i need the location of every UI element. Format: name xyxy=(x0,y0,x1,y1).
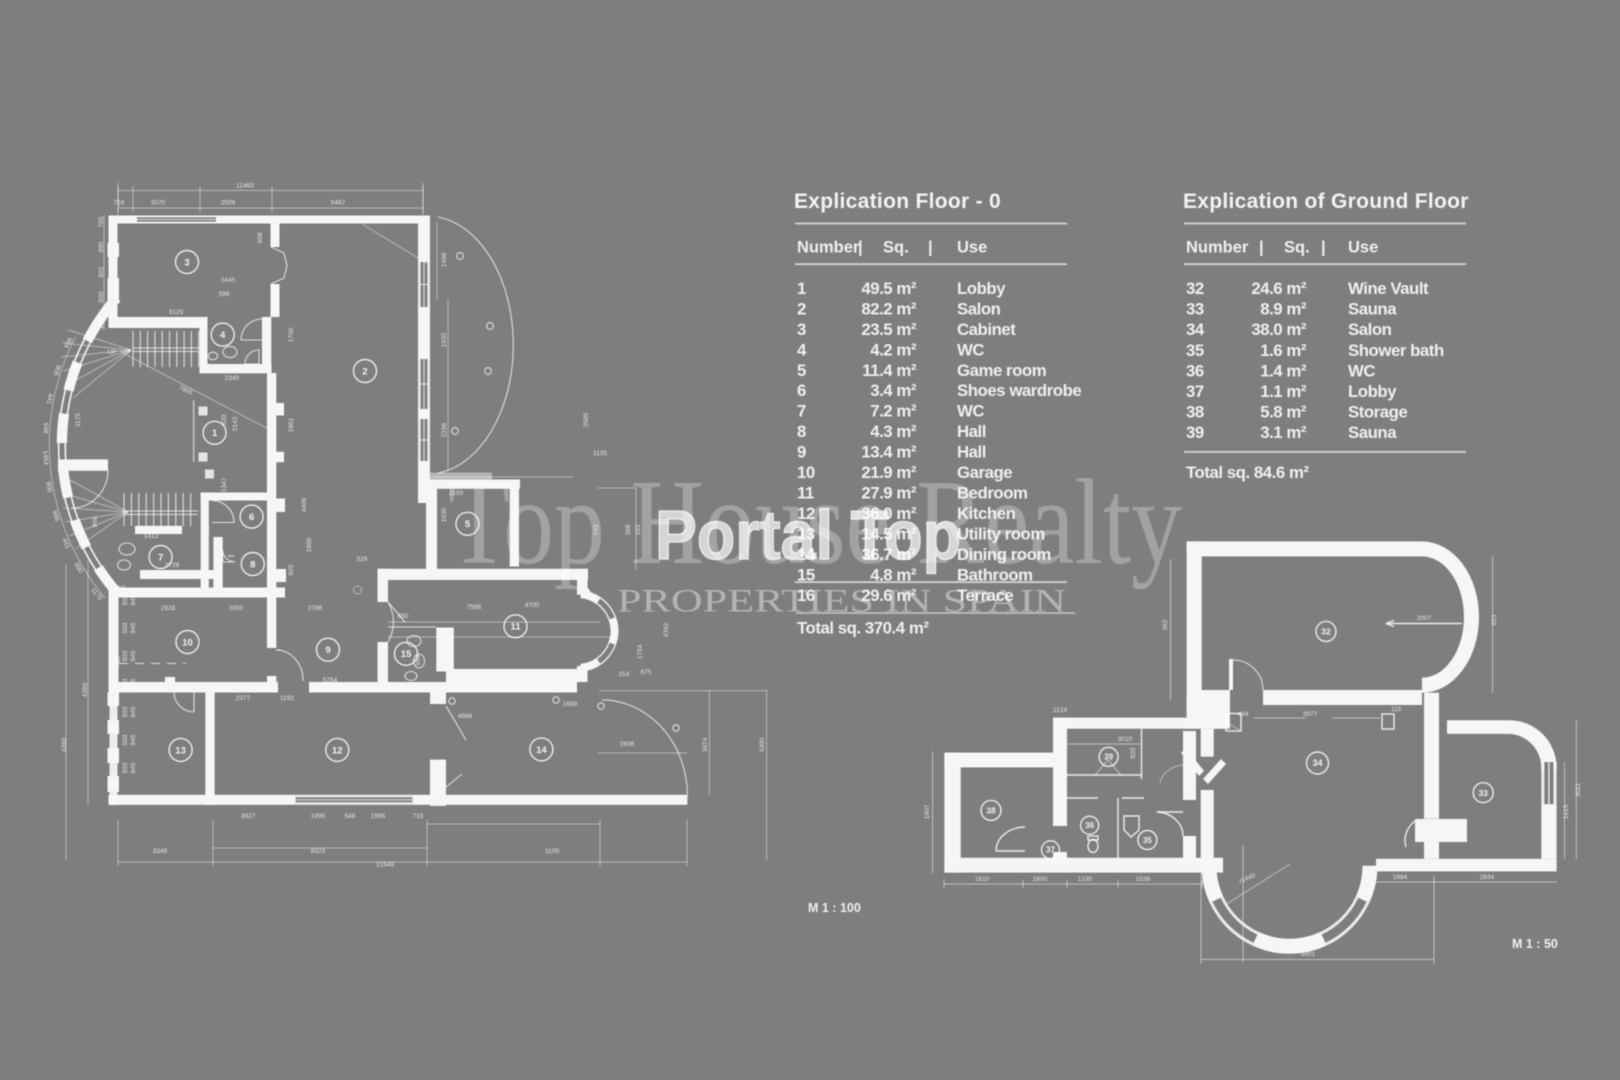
svg-text:1: 1 xyxy=(212,428,218,439)
svg-text:755: 755 xyxy=(98,216,105,227)
svg-text:2928: 2928 xyxy=(161,605,176,612)
svg-text:1413: 1413 xyxy=(144,533,159,540)
svg-text:2786: 2786 xyxy=(308,605,323,612)
svg-text:32: 32 xyxy=(1186,279,1204,298)
svg-text:648: 648 xyxy=(41,422,49,434)
svg-text:2: 2 xyxy=(797,299,806,318)
svg-text:Use: Use xyxy=(1348,238,1378,256)
svg-text:906: 906 xyxy=(92,516,99,527)
svg-text:1600: 1600 xyxy=(1033,876,1048,883)
svg-text:719: 719 xyxy=(413,813,424,820)
svg-text:503: 503 xyxy=(122,734,129,745)
svg-text:2345: 2345 xyxy=(225,375,240,382)
svg-text:434: 434 xyxy=(1238,711,1249,718)
svg-text:1.6 m²: 1.6 m² xyxy=(1260,341,1307,360)
svg-text:5.8 m²: 5.8 m² xyxy=(1260,403,1307,422)
svg-text:650: 650 xyxy=(398,613,409,620)
svg-text:645: 645 xyxy=(130,734,137,745)
svg-text:38: 38 xyxy=(986,805,996,815)
svg-text:503: 503 xyxy=(122,650,129,661)
svg-text:503: 503 xyxy=(122,762,129,773)
svg-text:8323: 8323 xyxy=(311,848,326,855)
svg-text:923: 923 xyxy=(1491,614,1498,625)
svg-text:4: 4 xyxy=(797,340,807,359)
svg-text:815: 815 xyxy=(115,585,126,592)
svg-text:Number: Number xyxy=(797,238,860,256)
svg-text:800: 800 xyxy=(98,291,105,302)
svg-text:WC: WC xyxy=(957,340,984,359)
svg-text:890: 890 xyxy=(98,241,105,252)
svg-text:3129: 3129 xyxy=(169,309,184,316)
svg-text:6: 6 xyxy=(797,381,806,400)
svg-text:599: 599 xyxy=(219,291,230,298)
svg-text:13: 13 xyxy=(175,745,186,756)
svg-text:548: 548 xyxy=(345,813,356,820)
svg-text:7.2 m²: 7.2 m² xyxy=(870,402,917,421)
svg-text:1.4 m²: 1.4 m² xyxy=(1260,361,1307,380)
svg-text:Game room: Game room xyxy=(957,361,1046,380)
svg-text:Sauna: Sauna xyxy=(1348,300,1397,319)
svg-text:1050: 1050 xyxy=(98,314,105,329)
svg-text:2196: 2196 xyxy=(441,422,448,437)
svg-text:37: 37 xyxy=(1186,382,1204,401)
svg-text:34: 34 xyxy=(1312,758,1322,768)
svg-text:36: 36 xyxy=(1186,361,1204,380)
svg-text:WC: WC xyxy=(1348,361,1375,380)
svg-text:1610: 1610 xyxy=(975,876,990,883)
svg-text:49.5 m²: 49.5 m² xyxy=(861,279,917,298)
svg-text:5467: 5467 xyxy=(331,200,346,207)
svg-text:23.5 m²: 23.5 m² xyxy=(861,320,917,339)
svg-text:1347: 1347 xyxy=(221,477,228,492)
svg-text:386: 386 xyxy=(105,574,112,585)
svg-text:11: 11 xyxy=(510,622,521,633)
svg-text:1109: 1109 xyxy=(545,848,559,855)
svg-text:645: 645 xyxy=(130,650,137,661)
svg-text:5754: 5754 xyxy=(323,677,338,684)
svg-text:1680: 1680 xyxy=(563,701,578,708)
svg-text:4409: 4409 xyxy=(301,497,308,512)
svg-text:Lobby: Lobby xyxy=(1348,382,1397,401)
svg-text:Explication of Ground Floor: Explication of Ground Floor xyxy=(1183,190,1469,213)
svg-text:1192: 1192 xyxy=(280,695,294,702)
svg-text:6: 6 xyxy=(249,512,254,523)
svg-text:3674: 3674 xyxy=(702,737,709,752)
svg-text:4.3 m²: 4.3 m² xyxy=(870,422,917,441)
svg-text:3346: 3346 xyxy=(153,848,168,855)
svg-text:3: 3 xyxy=(797,320,806,339)
svg-text:716: 716 xyxy=(114,200,125,207)
svg-text:1175: 1175 xyxy=(75,413,82,427)
svg-text:763: 763 xyxy=(115,656,122,667)
svg-text:21548: 21548 xyxy=(376,862,394,869)
svg-text:820: 820 xyxy=(1130,747,1137,758)
svg-text:908: 908 xyxy=(257,232,264,243)
svg-text:503: 503 xyxy=(122,622,129,633)
svg-text:M 1 : 100: M 1 : 100 xyxy=(808,901,861,915)
svg-text:1124: 1124 xyxy=(1053,707,1067,714)
svg-text:362: 362 xyxy=(1162,619,1169,630)
svg-text:115: 115 xyxy=(1391,706,1402,713)
svg-text:645: 645 xyxy=(130,678,137,689)
svg-text:503: 503 xyxy=(122,678,129,689)
svg-text:3.1 m²: 3.1 m² xyxy=(1260,423,1307,442)
svg-text:33: 33 xyxy=(1478,788,1488,798)
svg-text:PROPERTIES IN SPAIN: PROPERTIES IN SPAIN xyxy=(617,584,1066,620)
svg-text:1.1 m²: 1.1 m² xyxy=(1260,382,1307,401)
svg-text:3010: 3010 xyxy=(1118,736,1133,743)
svg-text:2445: 2445 xyxy=(221,277,236,284)
svg-text:|: | xyxy=(928,238,933,256)
svg-text:645: 645 xyxy=(130,762,137,773)
svg-text:34: 34 xyxy=(1186,320,1205,339)
svg-text:920: 920 xyxy=(288,564,295,575)
svg-text:WC: WC xyxy=(957,402,984,421)
svg-text:9: 9 xyxy=(325,645,330,656)
svg-text:5901: 5901 xyxy=(1301,951,1316,958)
svg-text:39: 39 xyxy=(1104,753,1113,762)
svg-text:8: 8 xyxy=(250,559,255,570)
svg-text:2585: 2585 xyxy=(583,412,590,427)
svg-text:|: | xyxy=(1259,238,1264,256)
svg-text:11.4 m²: 11.4 m² xyxy=(862,361,917,380)
svg-text:39: 39 xyxy=(1186,423,1204,442)
svg-text:Shower bath: Shower bath xyxy=(1348,341,1444,360)
svg-text:1861: 1861 xyxy=(288,417,295,432)
svg-text:12: 12 xyxy=(332,745,343,756)
svg-text:7566: 7566 xyxy=(467,604,482,611)
svg-text:3.4 m²: 3.4 m² xyxy=(870,381,917,400)
svg-text:3070: 3070 xyxy=(151,200,166,207)
svg-text:Sq.: Sq. xyxy=(1284,238,1310,256)
svg-text:2007: 2007 xyxy=(1417,615,1432,622)
svg-text:35: 35 xyxy=(1186,341,1204,360)
svg-text:3: 3 xyxy=(184,257,189,268)
svg-text:Lobby: Lobby xyxy=(957,279,1006,298)
svg-text:645: 645 xyxy=(130,706,137,717)
svg-text:2143: 2143 xyxy=(232,416,239,431)
svg-text:8.9 m²: 8.9 m² xyxy=(1260,300,1307,319)
svg-text:35: 35 xyxy=(1143,836,1152,845)
svg-text:3011: 3011 xyxy=(1575,783,1582,797)
svg-text:Number: Number xyxy=(1186,238,1249,256)
svg-text:1: 1 xyxy=(797,279,806,298)
svg-text:2377: 2377 xyxy=(236,695,251,702)
svg-text:4: 4 xyxy=(220,330,226,341)
svg-text:1935: 1935 xyxy=(441,507,448,522)
svg-text:4700: 4700 xyxy=(525,602,540,609)
svg-text:3927: 3927 xyxy=(241,813,256,820)
svg-text:4342: 4342 xyxy=(663,622,670,637)
svg-text:4390: 4390 xyxy=(759,737,766,752)
svg-text:Total sq. 370.4 m²: Total sq. 370.4 m² xyxy=(797,619,929,638)
svg-text:Portal Top: Portal Top xyxy=(655,496,961,574)
svg-text:645: 645 xyxy=(130,622,137,633)
svg-text:8: 8 xyxy=(797,422,806,441)
svg-text:11463: 11463 xyxy=(236,183,254,190)
svg-text:14: 14 xyxy=(536,745,547,756)
svg-text:7: 7 xyxy=(797,402,806,421)
svg-text:1536: 1536 xyxy=(1136,876,1151,883)
svg-text:1454: 1454 xyxy=(41,450,49,465)
svg-text:|: | xyxy=(1321,238,1326,256)
svg-text:32: 32 xyxy=(1321,626,1331,636)
svg-text:37: 37 xyxy=(1046,846,1055,855)
svg-text:529: 529 xyxy=(357,556,368,563)
svg-text:Salon: Salon xyxy=(1348,320,1392,339)
svg-text:38.0 m²: 38.0 m² xyxy=(1251,320,1307,339)
svg-text:1230: 1230 xyxy=(1078,876,1093,883)
svg-text:920: 920 xyxy=(221,414,228,425)
svg-text:Total sq. 84.6 m²: Total sq. 84.6 m² xyxy=(1186,463,1309,482)
svg-text:Wine Vault: Wine Vault xyxy=(1348,279,1429,298)
svg-text:3977: 3977 xyxy=(1303,711,1318,718)
svg-text:4390: 4390 xyxy=(61,737,68,752)
svg-text:Shoes wardrobe: Shoes wardrobe xyxy=(957,381,1081,400)
svg-text:314: 314 xyxy=(619,671,630,678)
svg-text:15: 15 xyxy=(401,649,412,660)
svg-text:503: 503 xyxy=(122,706,129,717)
svg-text:1415: 1415 xyxy=(1563,804,1570,819)
svg-text:1995: 1995 xyxy=(311,813,326,820)
svg-text:Use: Use xyxy=(957,238,987,256)
svg-text:954: 954 xyxy=(415,654,422,665)
svg-text:802: 802 xyxy=(98,266,105,277)
svg-text:1754: 1754 xyxy=(637,644,644,659)
svg-text:645: 645 xyxy=(130,594,137,605)
svg-text:Storage: Storage xyxy=(1348,403,1407,422)
svg-text:2: 2 xyxy=(362,366,367,377)
svg-text:|: | xyxy=(858,238,863,256)
svg-text:Explication Floor - 0: Explication Floor - 0 xyxy=(794,190,1001,213)
svg-text:4666: 4666 xyxy=(458,713,473,720)
svg-text:1935: 1935 xyxy=(441,332,448,347)
svg-text:Sauna: Sauna xyxy=(1348,423,1397,442)
svg-text:82.2 m²: 82.2 m² xyxy=(861,299,917,318)
svg-text:1498: 1498 xyxy=(441,252,448,267)
svg-text:1860: 1860 xyxy=(306,537,313,552)
svg-text:38: 38 xyxy=(1186,403,1204,422)
svg-text:1907: 1907 xyxy=(924,804,931,819)
svg-text:2050: 2050 xyxy=(229,605,244,612)
svg-text:7: 7 xyxy=(158,552,163,563)
svg-text:10: 10 xyxy=(182,637,193,648)
svg-text:1984: 1984 xyxy=(1393,874,1408,881)
svg-text:Cabinet: Cabinet xyxy=(957,320,1016,339)
svg-text:24.6 m²: 24.6 m² xyxy=(1251,279,1307,298)
svg-text:1995: 1995 xyxy=(371,813,386,820)
svg-text:2509: 2509 xyxy=(221,200,236,207)
svg-text:2834: 2834 xyxy=(1480,874,1495,881)
svg-text:Sq.: Sq. xyxy=(883,238,909,256)
svg-text:4.2 m²: 4.2 m² xyxy=(870,340,917,359)
svg-text:503: 503 xyxy=(122,594,129,605)
svg-text:Salon: Salon xyxy=(957,299,1001,318)
svg-text:Hall: Hall xyxy=(957,422,986,441)
svg-text:36: 36 xyxy=(1085,821,1094,830)
svg-text:M 1 : 50: M 1 : 50 xyxy=(1512,937,1558,951)
svg-text:UP: UP xyxy=(107,349,116,356)
svg-text:33: 33 xyxy=(1186,300,1204,319)
svg-text:2806: 2806 xyxy=(620,741,635,748)
svg-text:1700: 1700 xyxy=(288,327,295,342)
svg-text:2728: 2728 xyxy=(165,562,180,569)
svg-text:5: 5 xyxy=(797,361,806,380)
svg-text:675: 675 xyxy=(641,669,652,676)
